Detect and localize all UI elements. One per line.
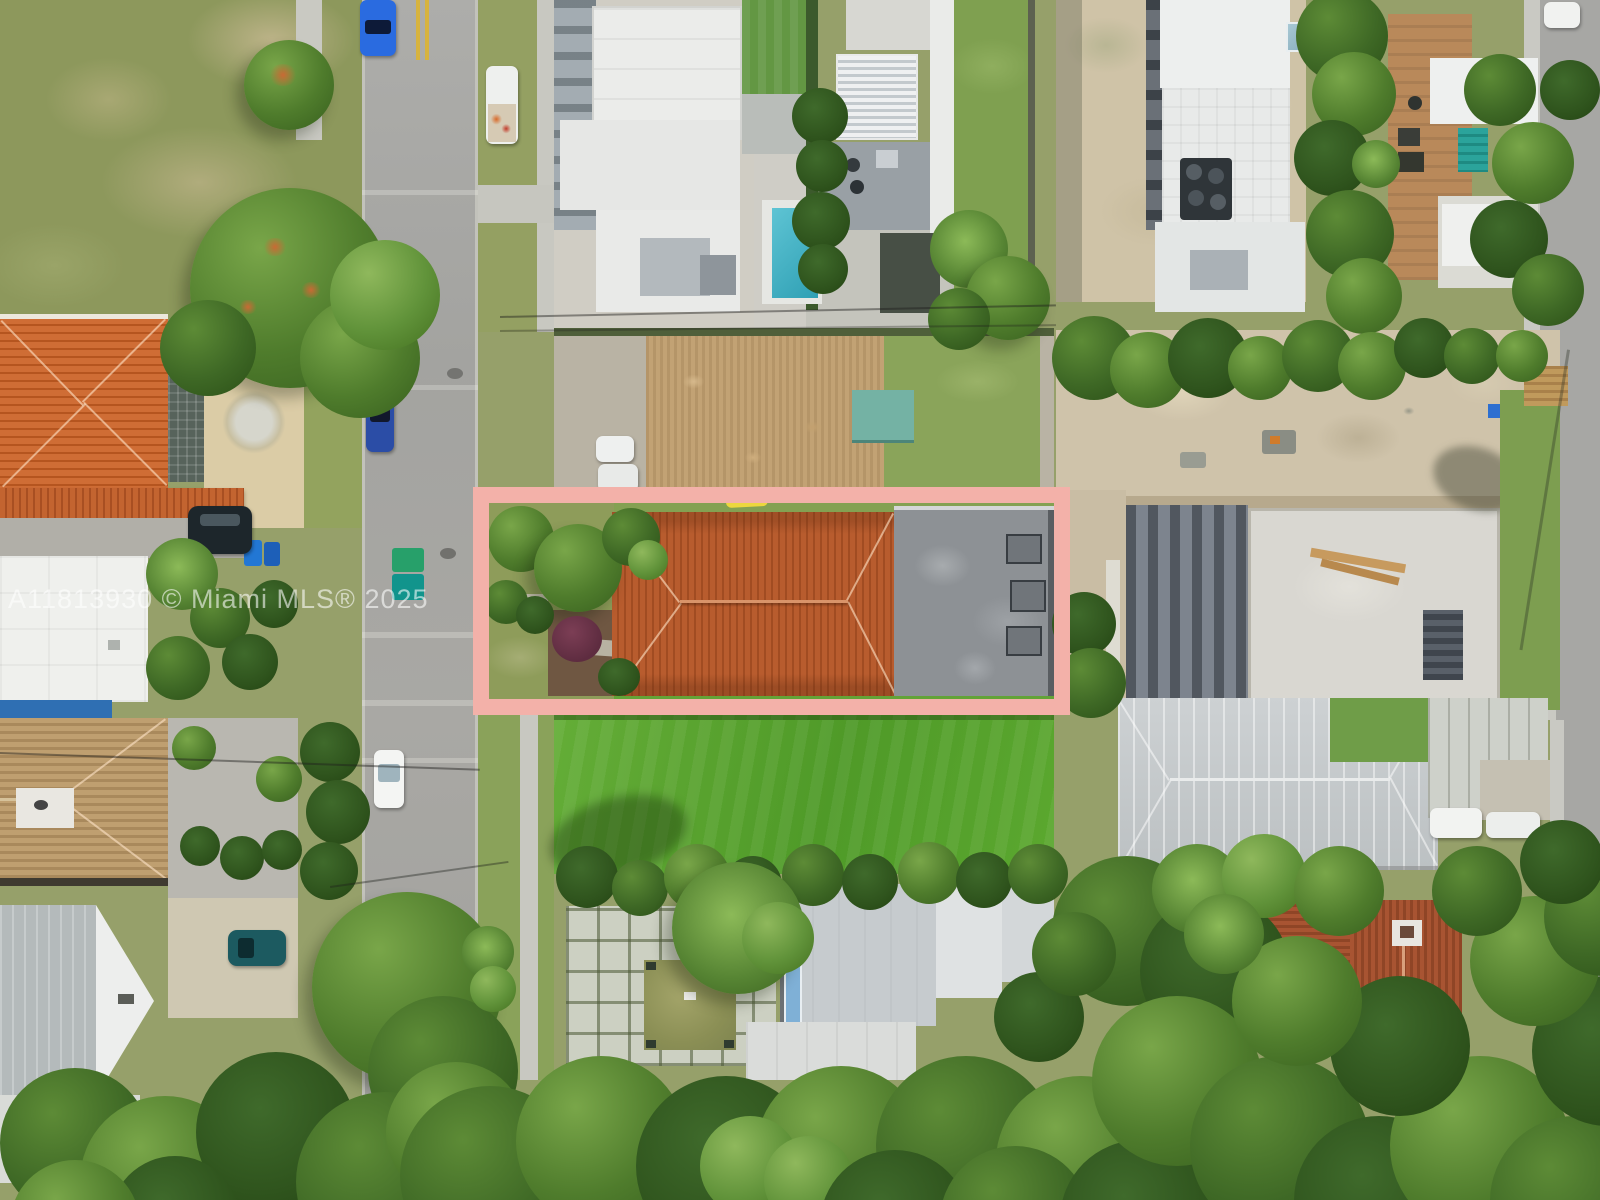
modern-house-roof — [1160, 0, 1290, 88]
parked-sedan-teal — [228, 930, 286, 966]
machinery-orange — [1270, 436, 1280, 444]
roof-hip-ridge — [82, 319, 166, 403]
tree — [1326, 258, 1402, 334]
ac-unit — [846, 158, 860, 172]
center-line-yellow — [416, 0, 429, 60]
pavement-joint — [362, 632, 478, 638]
hedge-bush — [792, 88, 848, 144]
roof-hip-ridge — [60, 798, 167, 880]
roof-inset-gray — [1190, 250, 1248, 290]
watermark: A11813930 © Miami MLS® 2025 — [8, 584, 429, 615]
garage-door — [700, 255, 736, 295]
chimney — [1392, 920, 1422, 946]
hedge-row — [842, 854, 898, 910]
parked-car-white — [1430, 808, 1482, 838]
roof-hip-ridge — [83, 402, 167, 486]
hedge-bush — [300, 722, 360, 782]
artificial-turf — [742, 0, 806, 94]
eave-shadow — [0, 878, 168, 886]
blue-roof-strip — [0, 700, 112, 720]
tree — [742, 902, 814, 974]
car-windshield — [200, 514, 240, 526]
deck-furniture — [1398, 128, 1420, 146]
orange-tile-roof-house — [0, 318, 168, 488]
palm-tree — [1184, 894, 1264, 974]
white-parapet — [930, 0, 954, 234]
hedge-bush — [792, 192, 850, 250]
modern-house-roof — [560, 120, 740, 210]
shed-vent — [684, 992, 696, 1000]
hedge-row — [898, 842, 960, 904]
tree — [1540, 60, 1600, 120]
hedge-bush — [262, 830, 302, 870]
ac-unit — [850, 180, 864, 194]
roof-hatch — [876, 150, 898, 168]
truck-bed — [488, 104, 516, 142]
ac-unit — [1208, 168, 1224, 184]
brown-shingle-roof-house — [0, 718, 168, 882]
tree — [1432, 846, 1522, 936]
pavement-joint — [362, 190, 478, 195]
shed-corner — [646, 962, 656, 970]
tree — [1520, 820, 1600, 904]
tree — [160, 300, 256, 396]
parked-car-white — [374, 750, 404, 808]
shed-corner — [646, 1040, 656, 1048]
roof-hip-ridge — [1118, 700, 1170, 781]
parked-car-white — [1544, 2, 1580, 28]
hedge-bush — [306, 780, 370, 844]
tree-bloom — [238, 300, 258, 314]
roof-hip-ridge — [2, 403, 86, 487]
hedge-row — [956, 852, 1012, 908]
utility-cart-green — [392, 548, 424, 572]
property-highlight-box — [473, 487, 1070, 715]
car-windshield — [365, 20, 391, 34]
deck-table — [1408, 96, 1422, 110]
hedge-bush — [220, 836, 264, 880]
pickup-truck-white — [486, 66, 518, 144]
tree — [330, 240, 440, 350]
driveway — [1480, 760, 1550, 820]
tree — [1294, 846, 1384, 936]
car-windshield — [238, 938, 254, 958]
hedge-bush — [300, 842, 358, 900]
eave-strip — [0, 314, 168, 319]
lawn — [1500, 390, 1560, 710]
dark-slat-wall — [1423, 610, 1463, 680]
louvered-roof — [838, 56, 916, 138]
manhole — [447, 368, 463, 379]
ac-unit — [1186, 164, 1202, 180]
hedge-row — [556, 846, 618, 908]
lounge-chairs-teal — [1458, 128, 1488, 172]
roof-hip-ridge — [1, 320, 84, 406]
tree-bloom — [300, 282, 322, 298]
patio-table — [34, 800, 48, 810]
van-white — [596, 436, 634, 462]
ac-unit — [1188, 190, 1204, 206]
tree — [1444, 328, 1500, 384]
yard-circle-feature — [222, 390, 286, 454]
roof-hip-ridge — [1120, 779, 1172, 867]
ac-unit — [1210, 194, 1226, 210]
gable-vent — [118, 994, 134, 1004]
tree — [1492, 122, 1574, 204]
tree — [1032, 912, 1116, 996]
trash-bin-blue — [264, 542, 280, 566]
manhole — [440, 548, 456, 559]
parked-car-blue — [360, 0, 396, 56]
teal-shed-roof — [852, 390, 914, 443]
shed-corner — [724, 1040, 734, 1048]
pavement-joint — [362, 700, 478, 706]
hedge-bush — [798, 244, 848, 294]
sidewalk — [520, 700, 538, 1080]
tan-shingle-roof — [646, 336, 884, 488]
grass-verge — [478, 0, 537, 332]
tree-bloom — [262, 238, 288, 256]
roof-vent — [108, 640, 120, 650]
rooftop-ac-units — [1180, 158, 1232, 220]
machinery — [1180, 452, 1206, 468]
deck-furniture — [1398, 152, 1424, 172]
white-flat-roof — [0, 556, 148, 702]
palm-tree — [470, 966, 516, 1012]
construction-building — [1126, 505, 1248, 705]
hedge-bush — [180, 826, 220, 866]
hedge-row — [1008, 844, 1068, 904]
tree — [146, 636, 210, 700]
chimney-flue — [1400, 926, 1414, 938]
modern-house-roof — [594, 8, 740, 138]
hedge-bush — [796, 140, 848, 192]
roof-main-ridge — [1170, 778, 1390, 781]
sidewalk — [537, 0, 554, 332]
courtyard-tree — [172, 726, 216, 770]
palm-tree — [1352, 140, 1400, 188]
aerial-neighborhood-photo: A11813930 © Miami MLS® 2025 — [0, 0, 1600, 1200]
hedge-row — [612, 860, 668, 916]
tree-bloom — [268, 64, 298, 86]
tree — [1464, 54, 1536, 126]
tree — [928, 288, 990, 350]
concrete-roof — [846, 0, 938, 50]
tree — [1496, 330, 1548, 382]
driveway — [478, 185, 554, 223]
tree — [222, 634, 278, 690]
building-shadow — [1056, 0, 1082, 302]
tree — [1512, 254, 1584, 326]
